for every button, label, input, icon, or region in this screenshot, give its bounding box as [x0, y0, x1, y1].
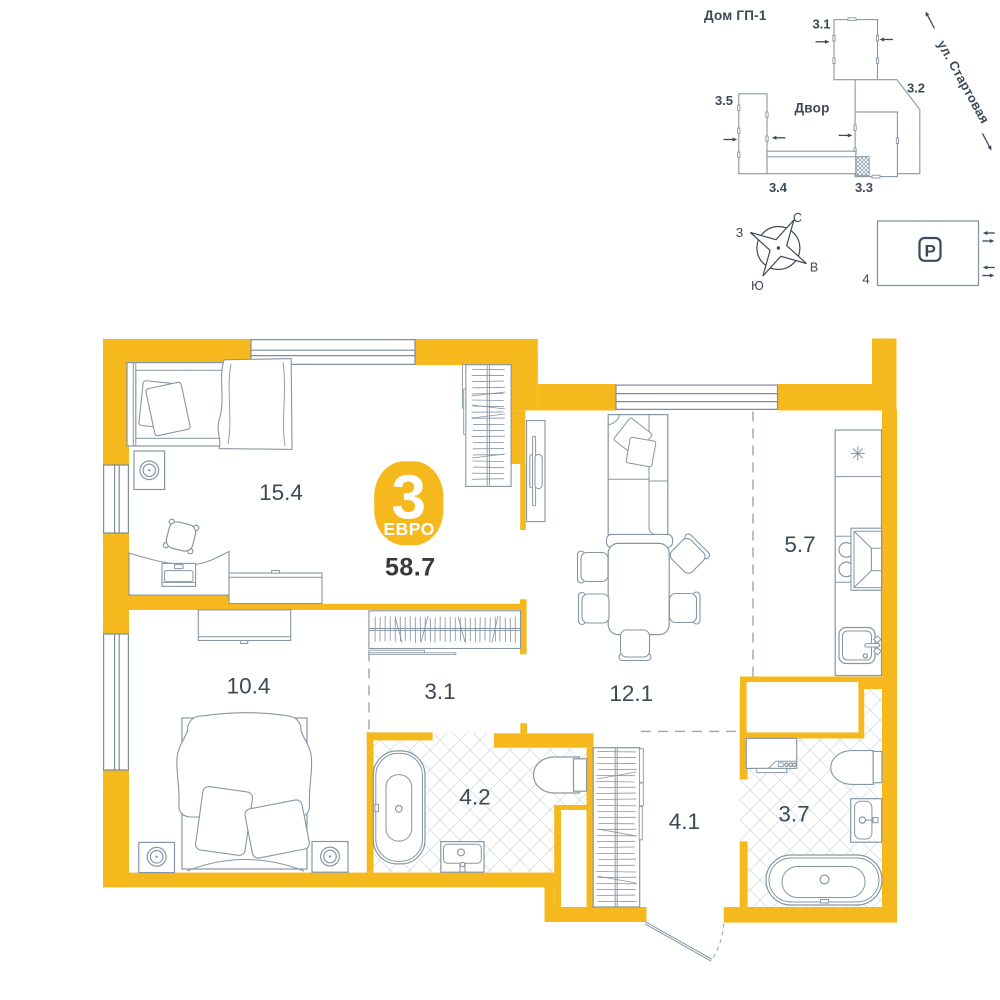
svg-text:Ю: Ю: [751, 279, 764, 293]
svg-text:ул. Стартовая: ул. Стартовая: [934, 38, 992, 126]
svg-text:З: З: [736, 226, 744, 240]
svg-text:5.7: 5.7: [784, 532, 815, 557]
svg-text:P: P: [925, 242, 936, 261]
svg-text:3.7: 3.7: [778, 802, 809, 827]
svg-text:В: В: [810, 261, 818, 275]
svg-text:3.1: 3.1: [812, 17, 830, 32]
svg-text:3.4: 3.4: [769, 180, 788, 195]
svg-text:Двор: Двор: [794, 100, 829, 115]
svg-text:ЕВРО: ЕВРО: [384, 519, 435, 539]
svg-text:3.3: 3.3: [855, 180, 873, 195]
svg-text:3.2: 3.2: [907, 80, 925, 95]
svg-text:С: С: [793, 211, 802, 225]
svg-text:4: 4: [862, 272, 869, 287]
svg-text:4.1: 4.1: [669, 809, 700, 834]
svg-text:3.5: 3.5: [715, 93, 733, 108]
svg-text:Дом ГП-1: Дом ГП-1: [704, 8, 767, 23]
svg-text:3.1: 3.1: [424, 679, 455, 704]
svg-text:4.2: 4.2: [459, 785, 490, 810]
svg-text:58.7: 58.7: [385, 553, 436, 581]
svg-text:15.4: 15.4: [259, 480, 303, 505]
svg-text:12.1: 12.1: [609, 681, 653, 706]
svg-text:10.4: 10.4: [227, 674, 271, 699]
